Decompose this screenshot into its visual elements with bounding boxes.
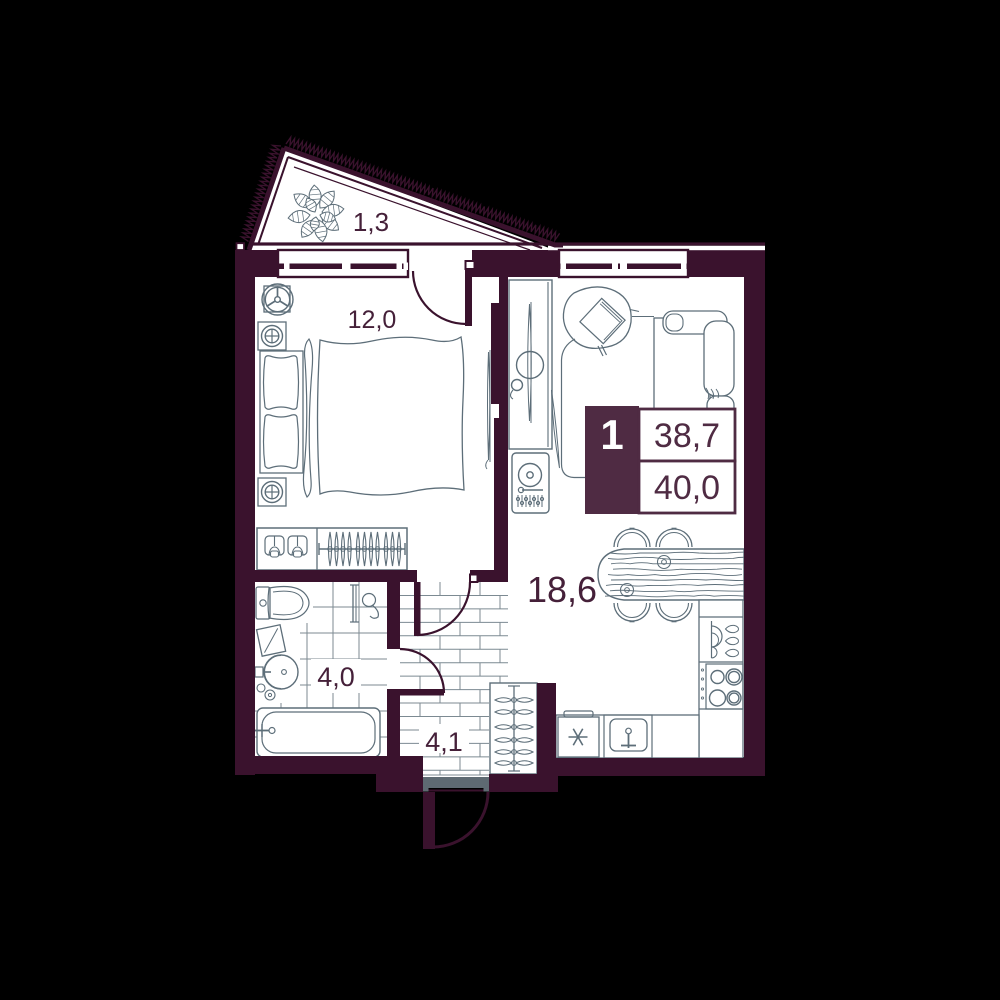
svg-text:18,6: 18,6 (527, 569, 597, 610)
svg-text:4,0: 4,0 (317, 662, 355, 692)
svg-text:1: 1 (600, 411, 623, 458)
svg-text:4,1: 4,1 (425, 727, 463, 757)
svg-text:1,3: 1,3 (353, 207, 389, 237)
svg-text:40,0: 40,0 (654, 469, 720, 507)
svg-text:38,7: 38,7 (654, 417, 720, 455)
svg-text:12,0: 12,0 (348, 306, 397, 334)
